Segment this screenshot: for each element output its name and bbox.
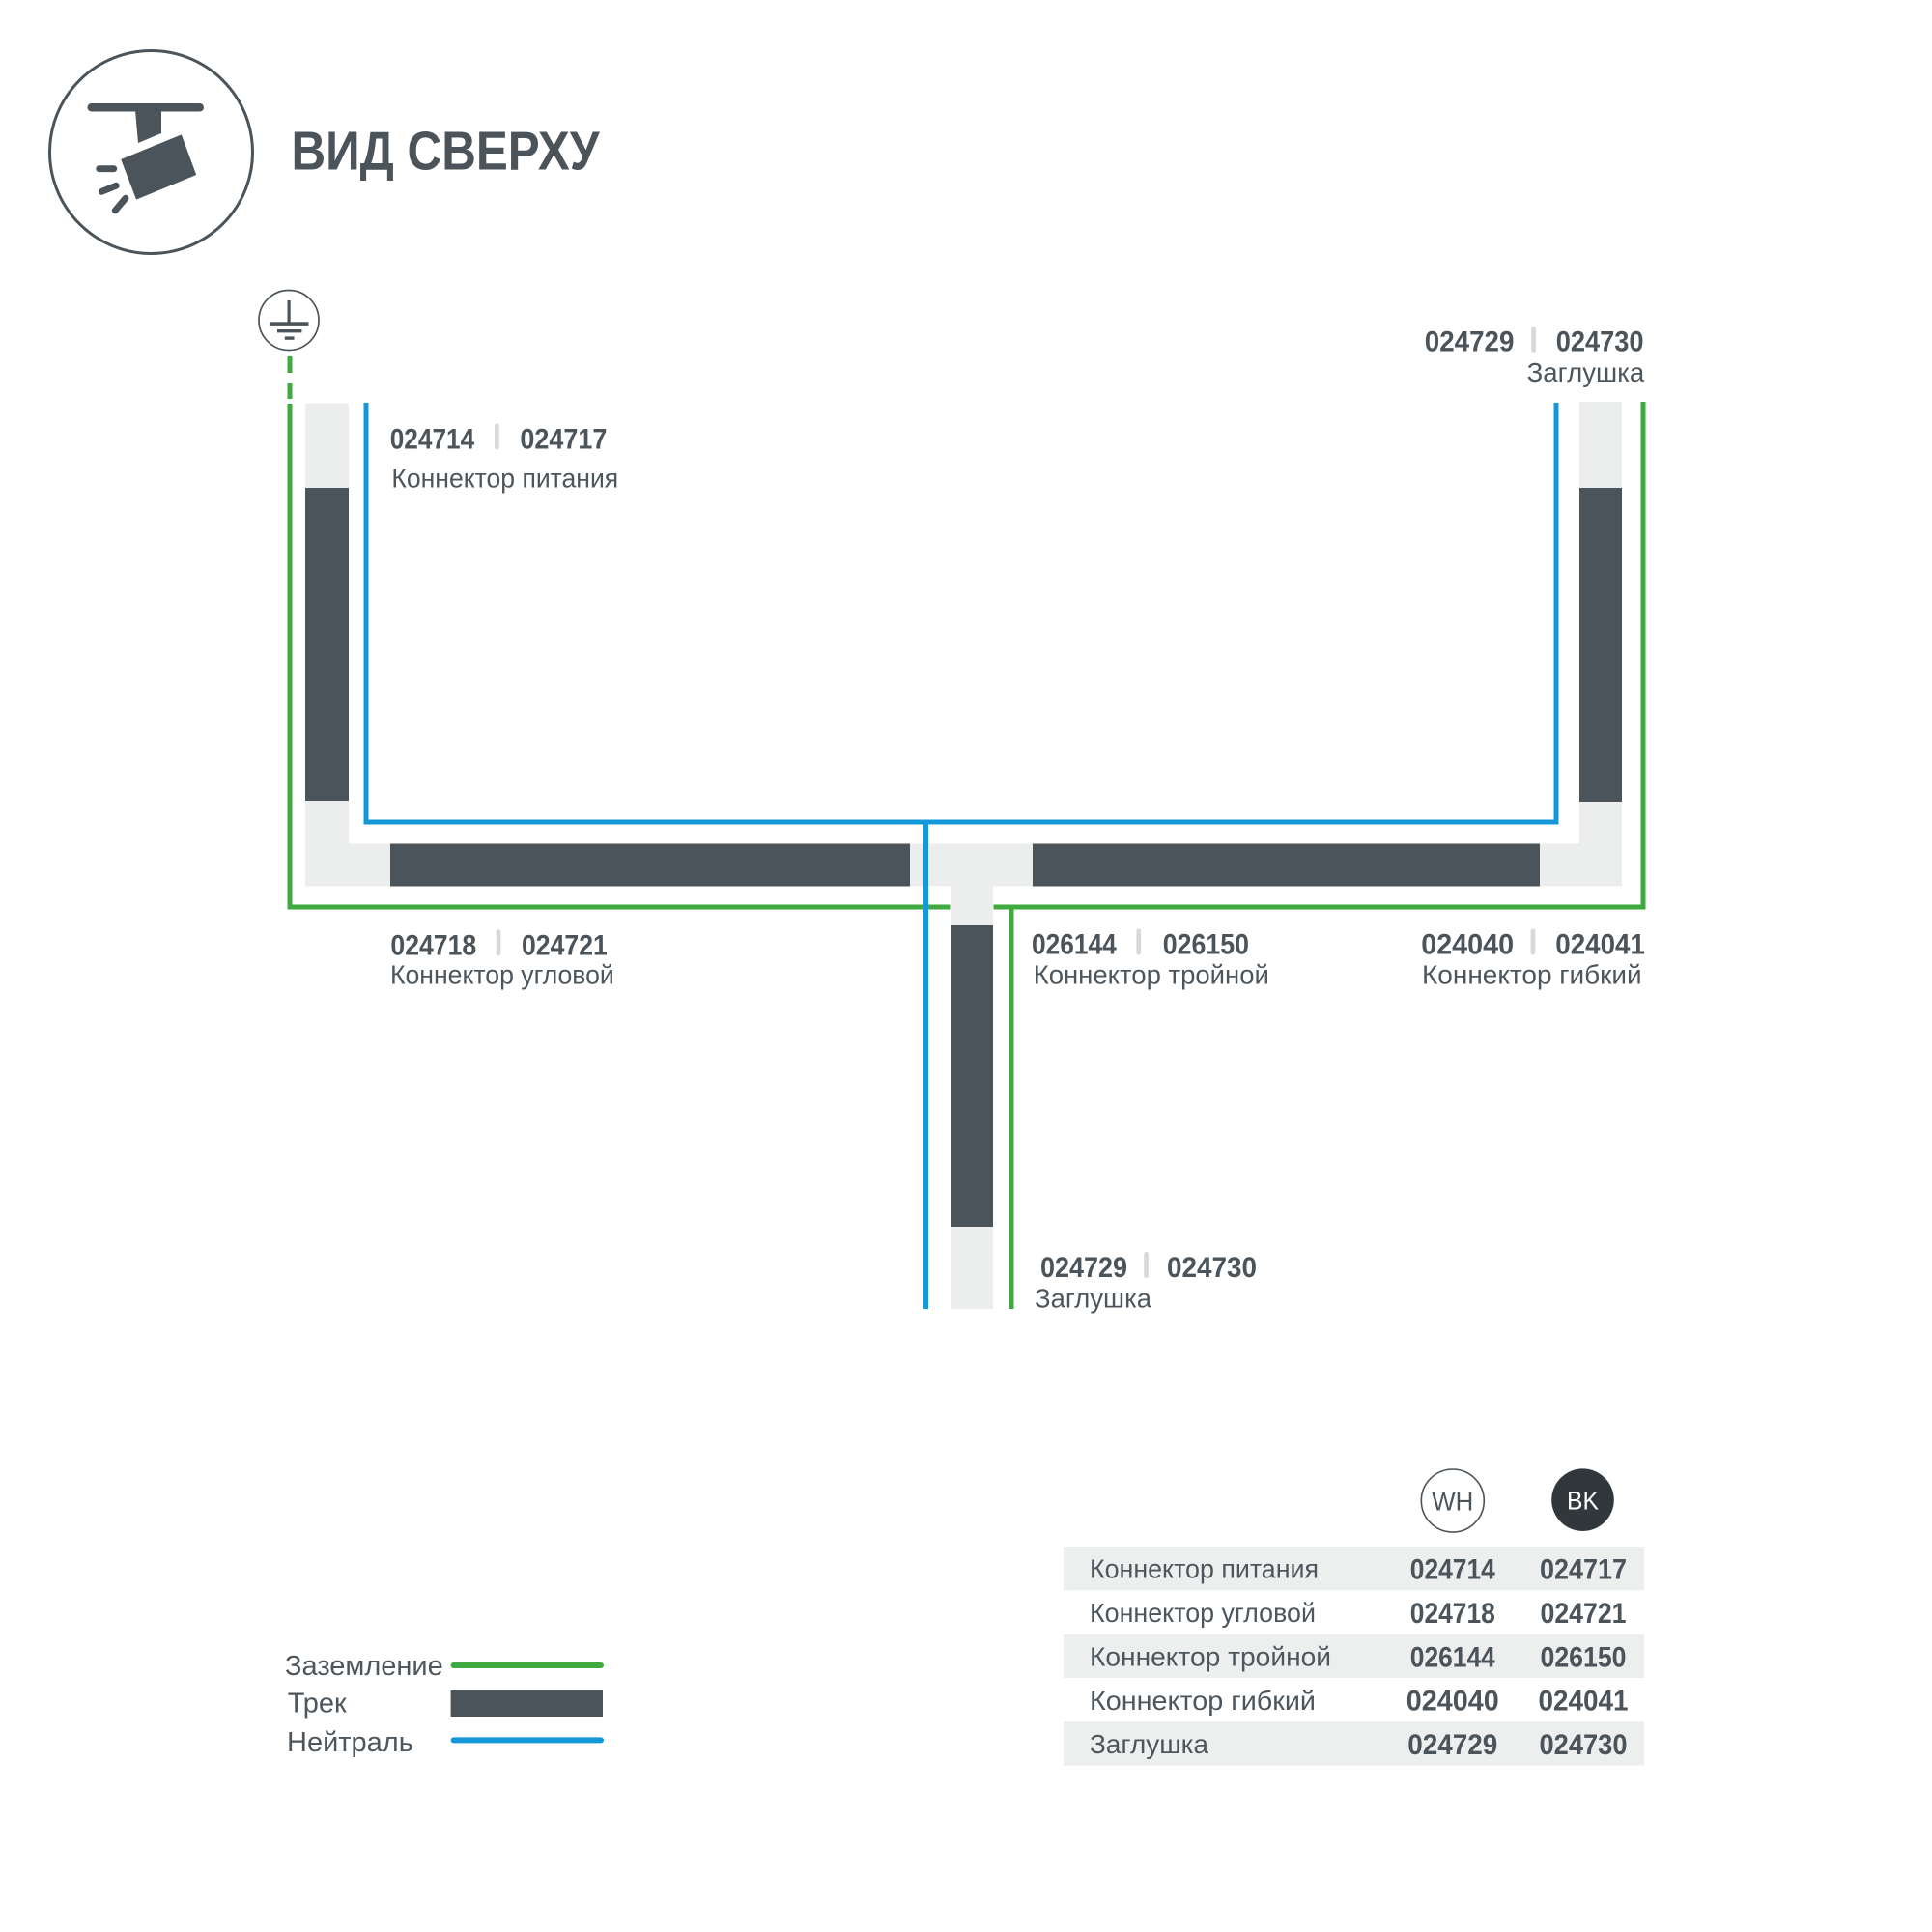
svg-text:024730: 024730 (1167, 1252, 1257, 1284)
svg-text:024040: 024040 (1421, 929, 1514, 961)
svg-text:024718: 024718 (1410, 1598, 1495, 1630)
svg-text:026150: 026150 (1541, 1641, 1627, 1673)
svg-text:Коннектор питания: Коннектор питания (1090, 1554, 1319, 1584)
svg-text:Коннектор тройной: Коннектор тройной (1034, 959, 1269, 989)
svg-text:BK: BK (1567, 1487, 1599, 1516)
svg-text:024730: 024730 (1540, 1729, 1628, 1761)
svg-text:024721: 024721 (1541, 1598, 1627, 1630)
svg-text:Коннектор гибкий: Коннектор гибкий (1090, 1686, 1316, 1716)
svg-text:Заглушка: Заглушка (1035, 1284, 1151, 1314)
svg-text:Заглушка: Заглушка (1090, 1729, 1208, 1759)
svg-text:024730: 024730 (1556, 327, 1644, 358)
svg-text:Коннектор питания: Коннектор питания (391, 463, 618, 493)
svg-text:Коннектор гибкий: Коннектор гибкий (1422, 959, 1642, 989)
svg-text:024714: 024714 (390, 423, 475, 455)
svg-text:024041: 024041 (1555, 929, 1645, 961)
svg-text:024729: 024729 (1040, 1252, 1127, 1284)
svg-text:Заглушка: Заглушка (1527, 357, 1645, 387)
svg-text:Заземление: Заземление (285, 1651, 443, 1682)
svg-text:024041: 024041 (1539, 1686, 1629, 1718)
svg-text:026144: 026144 (1410, 1641, 1495, 1673)
svg-text:024729: 024729 (1425, 327, 1515, 358)
svg-text:024714: 024714 (1410, 1554, 1495, 1586)
svg-text:Нейтраль: Нейтраль (287, 1727, 413, 1758)
svg-text:Коннектор угловой: Коннектор угловой (1090, 1598, 1316, 1628)
svg-text:024721: 024721 (522, 929, 608, 961)
svg-text:WH: WH (1432, 1487, 1473, 1516)
svg-text:024717: 024717 (520, 423, 607, 455)
svg-text:024718: 024718 (390, 929, 476, 961)
svg-text:024040: 024040 (1406, 1686, 1499, 1718)
svg-text:024729: 024729 (1407, 1729, 1497, 1761)
svg-text:026150: 026150 (1163, 929, 1249, 961)
svg-text:026144: 026144 (1032, 929, 1117, 961)
svg-text:Трек: Трек (288, 1688, 347, 1719)
svg-text:Коннектор угловой: Коннектор угловой (390, 959, 614, 989)
svg-text:ВИД СВЕРХУ: ВИД СВЕРХУ (292, 121, 600, 183)
svg-text:024717: 024717 (1540, 1554, 1627, 1586)
svg-text:Коннектор тройной: Коннектор тройной (1090, 1642, 1331, 1672)
